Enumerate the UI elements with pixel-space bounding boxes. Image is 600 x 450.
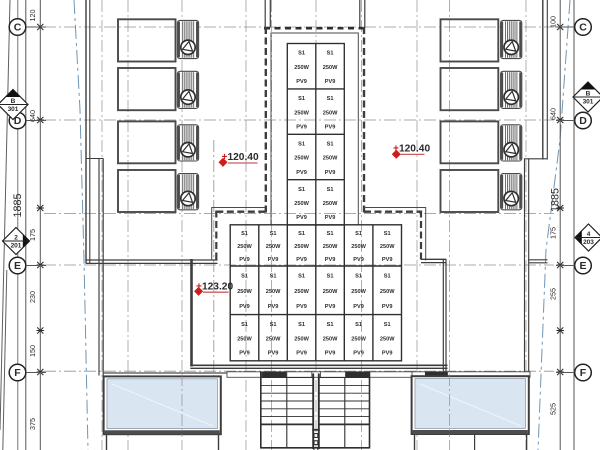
svg-text:250W: 250W xyxy=(323,336,338,342)
svg-text:PV9: PV9 xyxy=(382,304,393,310)
svg-text:PV9: PV9 xyxy=(296,170,307,176)
svg-text:S1: S1 xyxy=(298,322,305,328)
svg-text:PV9: PV9 xyxy=(353,257,364,263)
svg-text:S1: S1 xyxy=(327,322,334,328)
svg-text:D: D xyxy=(579,115,587,127)
svg-text:S1: S1 xyxy=(241,322,248,328)
svg-text:250W: 250W xyxy=(323,289,338,295)
svg-text:250W: 250W xyxy=(351,289,366,295)
svg-text:250W: 250W xyxy=(380,244,395,250)
svg-text:250W: 250W xyxy=(266,289,281,295)
svg-text:PV9: PV9 xyxy=(325,79,336,85)
svg-text:S1: S1 xyxy=(298,141,305,147)
svg-text:PV9: PV9 xyxy=(382,257,393,263)
svg-text:PV9: PV9 xyxy=(296,79,307,85)
svg-text:100: 100 xyxy=(549,16,558,28)
svg-text:250W: 250W xyxy=(294,156,309,162)
svg-text:PV9: PV9 xyxy=(239,257,250,263)
svg-text:250W: 250W xyxy=(380,289,395,295)
svg-text:S1: S1 xyxy=(355,274,362,280)
svg-text:S1: S1 xyxy=(270,274,277,280)
svg-text:PV9: PV9 xyxy=(382,351,393,357)
svg-text:250W: 250W xyxy=(380,336,395,342)
svg-text:S1: S1 xyxy=(298,231,305,237)
svg-text:250W: 250W xyxy=(351,336,366,342)
svg-text:E: E xyxy=(579,260,586,272)
svg-text:301: 301 xyxy=(8,106,19,113)
svg-text:PV9: PV9 xyxy=(353,351,364,357)
svg-text:S1: S1 xyxy=(298,96,305,102)
svg-text:PV9: PV9 xyxy=(239,351,250,357)
svg-text:S1: S1 xyxy=(327,187,334,193)
svg-text:S1: S1 xyxy=(384,231,391,237)
svg-text:201: 201 xyxy=(11,242,22,249)
svg-text:S1: S1 xyxy=(298,187,305,193)
svg-text:230: 230 xyxy=(28,291,37,303)
svg-text:250W: 250W xyxy=(237,336,252,342)
svg-text:150: 150 xyxy=(28,345,37,357)
svg-text:PV9: PV9 xyxy=(325,124,336,130)
svg-text:E: E xyxy=(14,260,21,272)
svg-text:PV9: PV9 xyxy=(268,257,279,263)
svg-text:S1: S1 xyxy=(241,274,248,280)
svg-text:250W: 250W xyxy=(323,110,338,116)
svg-text:S1: S1 xyxy=(355,231,362,237)
svg-text:PV9: PV9 xyxy=(239,304,250,310)
svg-text:S1: S1 xyxy=(327,274,334,280)
svg-text:250W: 250W xyxy=(294,201,309,207)
svg-text:S1: S1 xyxy=(384,274,391,280)
svg-text:PV9: PV9 xyxy=(325,215,336,221)
svg-text:250W: 250W xyxy=(294,289,309,295)
svg-text:PV9: PV9 xyxy=(268,351,279,357)
svg-text:250W: 250W xyxy=(237,244,252,250)
svg-text:+123.20: +123.20 xyxy=(196,282,233,293)
svg-text:250W: 250W xyxy=(323,65,338,71)
svg-text:250W: 250W xyxy=(266,336,281,342)
svg-text:250W: 250W xyxy=(294,65,309,71)
svg-text:PV9: PV9 xyxy=(353,304,364,310)
svg-text:PV9: PV9 xyxy=(296,257,307,263)
svg-text:175: 175 xyxy=(28,229,37,241)
svg-text:250W: 250W xyxy=(294,336,309,342)
svg-text:250W: 250W xyxy=(266,244,281,250)
svg-text:B: B xyxy=(586,90,591,97)
svg-text:120: 120 xyxy=(28,10,37,22)
svg-text:2: 2 xyxy=(14,234,18,241)
svg-text:S1: S1 xyxy=(298,51,305,57)
svg-text:175: 175 xyxy=(549,227,558,239)
svg-text:250W: 250W xyxy=(237,289,252,295)
svg-text:PV9: PV9 xyxy=(325,304,336,310)
svg-text:250W: 250W xyxy=(294,244,309,250)
svg-text:255: 255 xyxy=(549,288,558,300)
svg-text:640: 640 xyxy=(549,108,558,120)
svg-text:250W: 250W xyxy=(323,244,338,250)
svg-text:+120.40: +120.40 xyxy=(393,143,430,154)
svg-text:PV9: PV9 xyxy=(325,257,336,263)
svg-text:B: B xyxy=(11,98,16,105)
svg-text:250W: 250W xyxy=(323,201,338,207)
svg-text:S1: S1 xyxy=(384,322,391,328)
svg-text:C: C xyxy=(579,22,587,34)
svg-text:PV9: PV9 xyxy=(296,215,307,221)
svg-text:S1: S1 xyxy=(327,96,334,102)
svg-text:PV9: PV9 xyxy=(325,170,336,176)
svg-text:F: F xyxy=(580,367,587,379)
svg-text:375: 375 xyxy=(28,418,37,430)
svg-text:PV9: PV9 xyxy=(325,351,336,357)
svg-text:301: 301 xyxy=(583,98,594,105)
svg-text:1885: 1885 xyxy=(549,188,561,212)
svg-text:S1: S1 xyxy=(355,322,362,328)
svg-text:S1: S1 xyxy=(327,141,334,147)
svg-text:C: C xyxy=(14,22,22,34)
svg-text:S1: S1 xyxy=(270,231,277,237)
svg-text:S1: S1 xyxy=(241,231,248,237)
svg-text:PV9: PV9 xyxy=(296,304,307,310)
svg-text:+120.40: +120.40 xyxy=(222,152,259,163)
svg-text:F: F xyxy=(14,367,21,379)
svg-text:525: 525 xyxy=(549,403,558,415)
svg-text:S1: S1 xyxy=(270,322,277,328)
svg-text:250W: 250W xyxy=(351,244,366,250)
svg-text:250W: 250W xyxy=(323,156,338,162)
svg-text:4: 4 xyxy=(587,231,591,238)
svg-text:250W: 250W xyxy=(294,110,309,116)
svg-text:PV9: PV9 xyxy=(296,124,307,130)
svg-text:PV9: PV9 xyxy=(296,351,307,357)
svg-text:S1: S1 xyxy=(327,51,334,57)
svg-text:S1: S1 xyxy=(298,274,305,280)
svg-text:PV9: PV9 xyxy=(268,304,279,310)
svg-text:S1: S1 xyxy=(327,231,334,237)
svg-text:203: 203 xyxy=(583,239,594,246)
svg-text:1885: 1885 xyxy=(12,193,24,217)
